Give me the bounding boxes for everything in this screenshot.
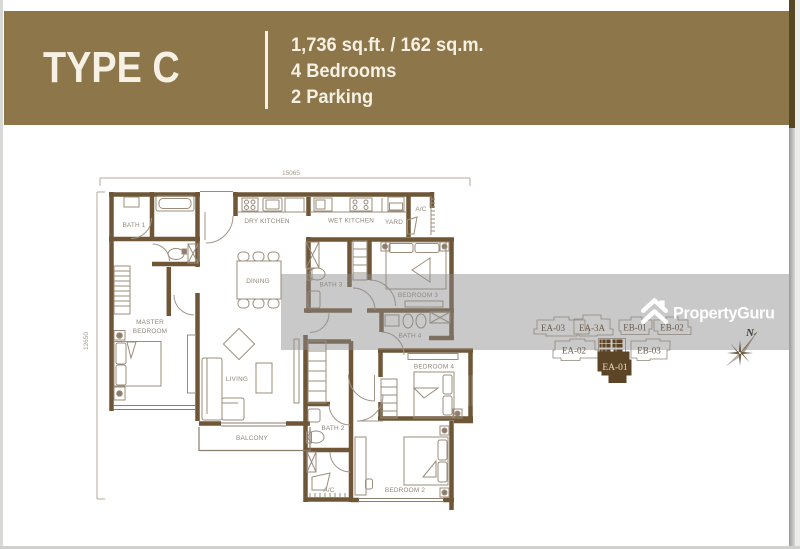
svg-text:A/C: A/C <box>323 487 334 494</box>
svg-text:BEDROOM: BEDROOM <box>133 328 167 335</box>
svg-text:EA-02: EA-02 <box>562 346 586 356</box>
svg-text:12650: 12650 <box>83 332 90 350</box>
svg-text:DINING: DINING <box>246 278 270 285</box>
svg-text:LIVING: LIVING <box>226 376 248 383</box>
svg-text:BEDROOM 2: BEDROOM 2 <box>385 487 425 494</box>
svg-text:YARD: YARD <box>385 219 403 226</box>
svg-text:BATH 2: BATH 2 <box>321 425 344 432</box>
svg-text:BALCONY: BALCONY <box>236 435 268 442</box>
svg-text:DRY KITCHEN: DRY KITCHEN <box>244 218 289 225</box>
svg-text:MASTER: MASTER <box>136 319 164 326</box>
svg-text:BATH 1: BATH 1 <box>122 222 145 229</box>
svg-text:WET KITCHEN: WET KITCHEN <box>328 218 374 225</box>
svg-text:EA-01: EA-01 <box>602 363 628 373</box>
svg-text:15065: 15065 <box>282 170 300 177</box>
svg-text:A/C: A/C <box>415 206 426 213</box>
svg-text:BEDROOM 4: BEDROOM 4 <box>414 364 454 371</box>
svg-text:EA-3A: EA-3A <box>579 323 605 333</box>
svg-text:EA-03: EA-03 <box>541 323 565 333</box>
svg-text:EB-03: EB-03 <box>637 346 661 356</box>
svg-text:N: N <box>745 327 755 339</box>
